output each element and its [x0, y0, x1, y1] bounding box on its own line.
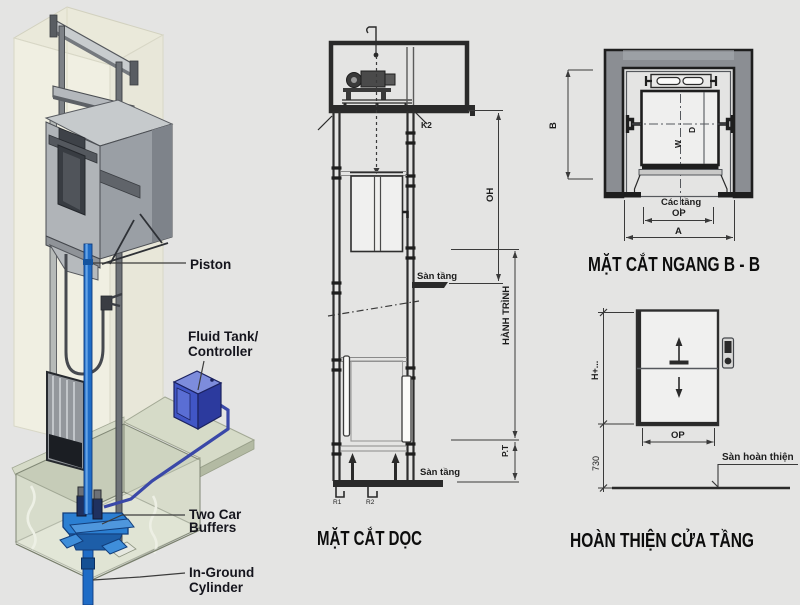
svg-text:HOÀN THIỆN CỬA TẦNG: HOÀN THIỆN CỬA TẦNG: [570, 528, 754, 552]
svg-text:H+...: H+...: [590, 361, 600, 380]
svg-text:In-Ground: In-Ground: [189, 565, 254, 580]
svg-text:Các tầng: Các tầng: [661, 197, 701, 208]
svg-text:730: 730: [591, 456, 601, 471]
svg-text:Cylinder: Cylinder: [189, 580, 244, 595]
svg-text:OP: OP: [671, 430, 685, 441]
svg-text:Sàn tầng: Sàn tầng: [417, 271, 457, 282]
svg-text:Piston: Piston: [190, 257, 231, 272]
svg-text:Controller: Controller: [188, 344, 253, 359]
svg-text:A: A: [675, 226, 682, 237]
svg-text:OH: OH: [485, 188, 496, 202]
svg-text:R2: R2: [366, 499, 375, 506]
svg-text:P.T: P.T: [500, 444, 510, 457]
svg-text:Sàn tầng: Sàn tầng: [420, 467, 460, 478]
svg-text:D: D: [687, 127, 697, 133]
svg-text:HÀNH TRÌNH: HÀNH TRÌNH: [501, 286, 512, 345]
svg-text:Sàn hoàn thiện: Sàn hoàn thiện: [722, 452, 794, 463]
svg-text:R1: R1: [333, 499, 342, 506]
svg-text:W: W: [673, 139, 683, 148]
svg-text:OP: OP: [672, 208, 686, 219]
svg-text:B: B: [548, 122, 559, 129]
svg-text:MẶT CẮT NGANG B - B: MẶT CẮT NGANG B - B: [588, 252, 760, 276]
svg-text:K2: K2: [421, 120, 432, 130]
svg-text:Buffers: Buffers: [189, 520, 236, 535]
svg-text:MẶT CẮT DỌC: MẶT CẮT DỌC: [317, 526, 422, 550]
svg-text:Fluid Tank/: Fluid Tank/: [188, 329, 258, 344]
